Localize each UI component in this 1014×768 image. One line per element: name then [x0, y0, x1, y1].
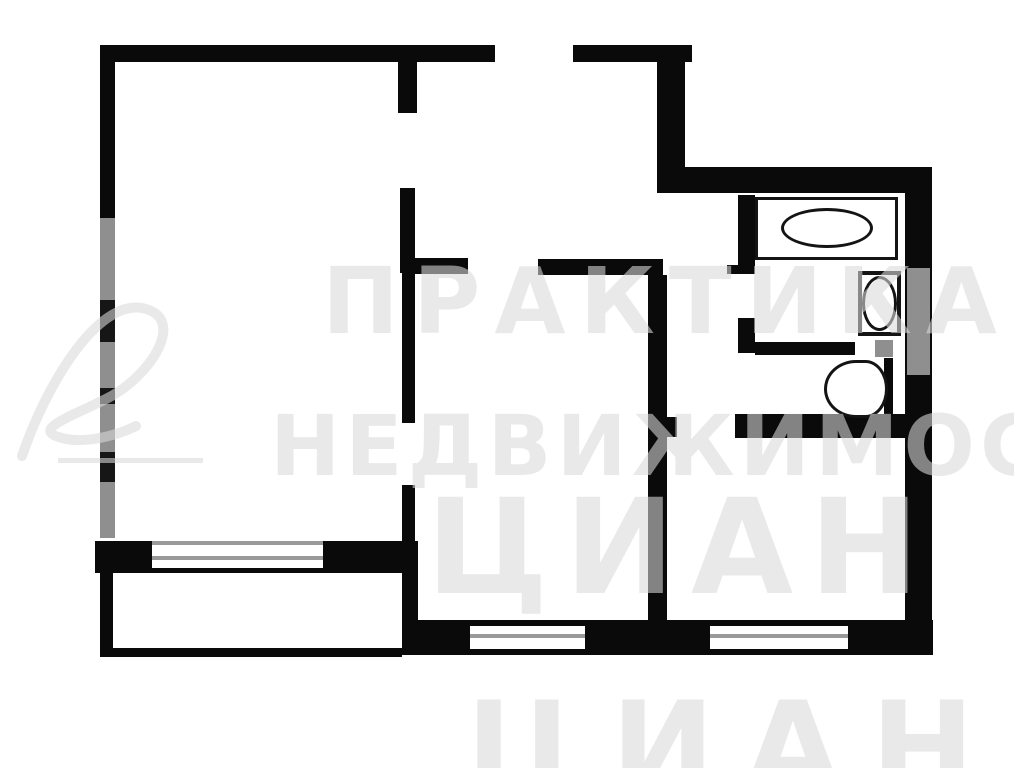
watermark-logo-icon — [0, 268, 240, 478]
wall-balcony-window-left-pier — [95, 541, 152, 573]
window-bottom-right-room — [710, 620, 848, 655]
wall-right-faded-block — [907, 268, 930, 375]
wall-washroom-left — [738, 318, 755, 353]
wall-top-left-segment — [100, 45, 495, 62]
wall-bathroom-left — [738, 195, 755, 270]
window-frame-line — [710, 620, 848, 626]
wall-middle-vertical-upper — [400, 188, 415, 273]
wall-left-dark-patch-1 — [100, 300, 115, 342]
wall-step-vertical — [657, 62, 685, 193]
window-glass-line — [152, 556, 323, 560]
wall-left-upper — [100, 45, 115, 218]
wall-left-dark-patch-2 — [100, 388, 115, 404]
watermark-text-row: ЦИАН — [426, 482, 936, 614]
wall-bathroom-bottom-stub — [727, 265, 755, 274]
wall-balcony-left — [100, 573, 113, 657]
watermark-text-row: ЦИАН — [466, 686, 1005, 768]
washbasin-bowl-oval — [862, 276, 897, 331]
watermark-logo-icon — [0, 268, 240, 478]
wall-washroom-toilet-divider — [755, 342, 855, 355]
wall-middle-vertical-mid — [402, 273, 415, 423]
window-frame-line — [152, 568, 323, 573]
window-frame-line — [470, 649, 585, 655]
wall-left-faded — [100, 218, 115, 538]
wall-top-far-right — [685, 167, 932, 193]
window-glass-line — [710, 634, 848, 638]
window-bottom-middle-room — [470, 620, 585, 655]
window-balcony — [152, 541, 323, 573]
wall-hall-left-stub — [398, 62, 417, 113]
wall-balcony-bottom — [100, 648, 402, 657]
wall-left-dark-patch-3 — [100, 452, 115, 482]
wall-kitchen-doorway-stub — [667, 417, 677, 437]
wall-toilet-faded-notch — [875, 340, 893, 357]
wall-bottom-segment-2 — [585, 620, 710, 655]
watermark-text-row: ЦИАН — [426, 482, 936, 614]
wall-right — [905, 193, 932, 653]
wall-kitchen-top — [735, 414, 907, 438]
window-glass-line — [152, 541, 323, 545]
wall-bottom-right-corner — [848, 620, 933, 655]
floor-plan: ПРАКТИКА НЕДВИЖИМОСТ ЦИАН ЦИАН ПРАКТИКА … — [0, 0, 1014, 768]
wall-hall-bottom-right — [538, 259, 663, 275]
wall-middle-vertical-lower — [402, 485, 415, 622]
window-frame-line — [470, 620, 585, 626]
wall-hall-bottom-left — [415, 258, 468, 274]
bathtub-basin-oval — [781, 208, 873, 248]
wall-top-right-segment — [573, 45, 692, 62]
wall-corridor-vertical — [648, 275, 667, 622]
toilet-bowl — [824, 360, 888, 418]
window-glass-line — [470, 634, 585, 638]
window-frame-line — [710, 649, 848, 655]
watermark-text-row: ЦИАН — [466, 686, 1005, 768]
